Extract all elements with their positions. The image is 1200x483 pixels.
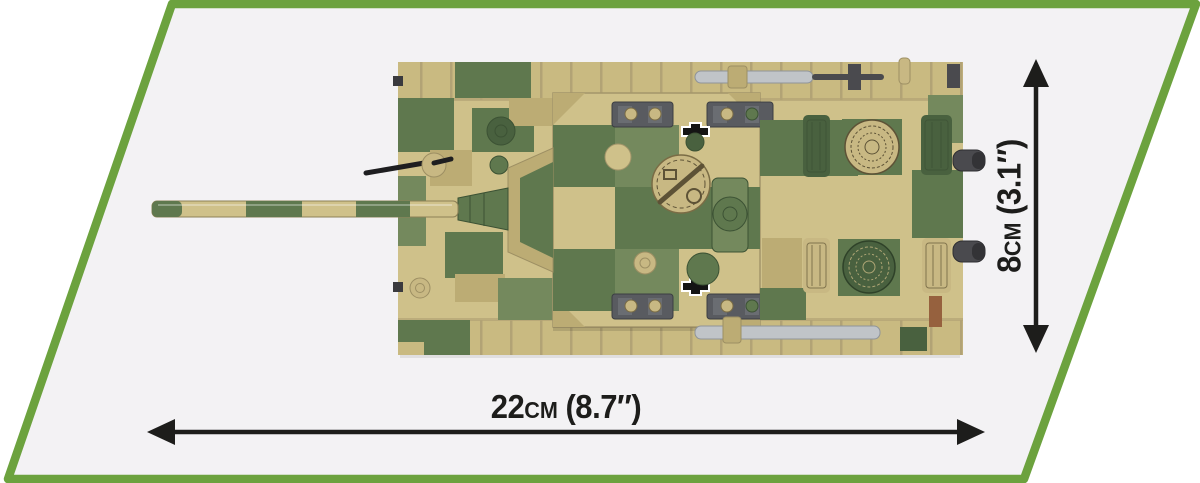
length-dimension-label: 22cm(8.7″) bbox=[491, 390, 642, 423]
length-unit: cm bbox=[524, 397, 558, 423]
engine-grille bbox=[842, 119, 902, 175]
height-dimension-label: 8cm(3.1″) bbox=[993, 139, 1026, 273]
spare-track-links bbox=[612, 294, 673, 319]
spare-track-links bbox=[612, 102, 673, 127]
commander-hatch bbox=[652, 155, 710, 213]
engine-grille bbox=[838, 239, 900, 296]
height-value: 8 bbox=[991, 256, 1028, 273]
product-dimensions-figure: 22cm(8.7″) 8cm(3.1″) bbox=[0, 0, 1200, 483]
exhaust-pipe bbox=[953, 150, 985, 171]
height-unit: cm bbox=[1000, 222, 1026, 256]
length-imperial: (8.7″) bbox=[565, 388, 641, 425]
gun-barrel bbox=[152, 201, 458, 217]
exhaust-pipe bbox=[953, 241, 985, 262]
length-value: 22 bbox=[491, 388, 525, 425]
shovel-tool bbox=[929, 296, 942, 327]
height-imperial: (3.1″) bbox=[991, 139, 1028, 215]
